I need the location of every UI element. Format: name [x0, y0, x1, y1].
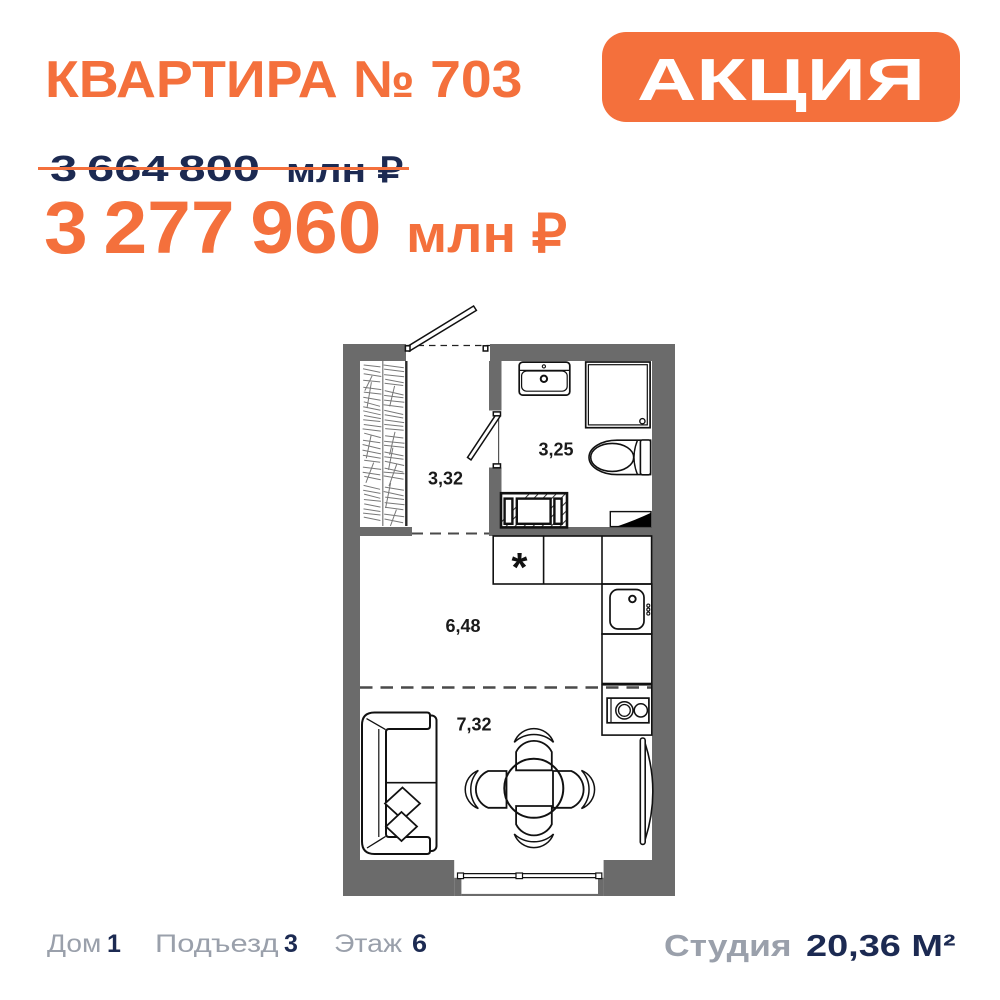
- svg-text:6,48: 6,48: [445, 616, 480, 636]
- svg-text:3,32: 3,32: [428, 469, 463, 489]
- svg-text:7,32: 7,32: [456, 715, 491, 735]
- svg-text:3,25: 3,25: [538, 440, 573, 460]
- svg-text:*: *: [512, 544, 528, 590]
